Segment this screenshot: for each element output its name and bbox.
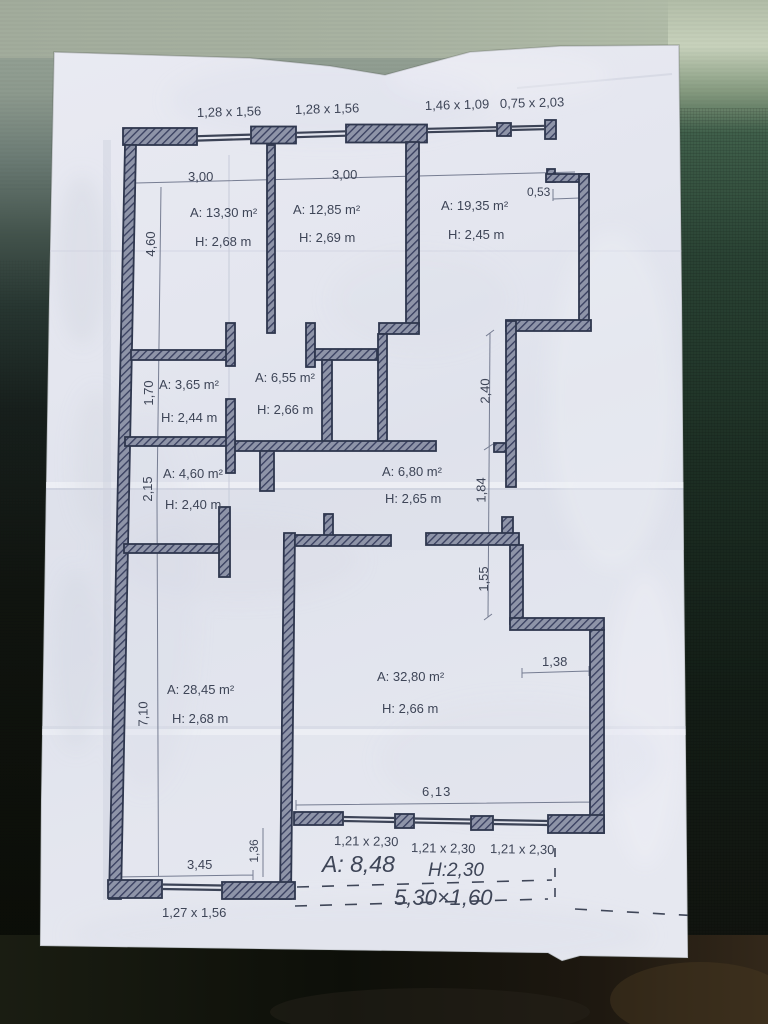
svg-text:1,21 x 2,30: 1,21 x 2,30 (411, 840, 476, 856)
svg-text:1,27 x 1,56: 1,27 x 1,56 (162, 905, 226, 920)
svg-text:1,70: 1,70 (141, 380, 156, 405)
svg-text:1,84: 1,84 (474, 477, 489, 502)
svg-text:A: 8,48: A: 8,48 (320, 851, 395, 877)
svg-text:A: 13,30 m²: A: 13,30 m² (190, 205, 258, 220)
svg-text:1,46 x 1,09: 1,46 x 1,09 (425, 96, 490, 113)
svg-text:H: 2,68 m: H: 2,68 m (172, 711, 228, 726)
svg-text:1,28 x 1,56: 1,28 x 1,56 (295, 100, 360, 117)
svg-text:2,15: 2,15 (140, 476, 155, 501)
svg-text:1,21 x 2,30: 1,21 x 2,30 (490, 841, 555, 857)
svg-text:H: 2,66 m: H: 2,66 m (257, 402, 313, 417)
svg-text:3,00: 3,00 (188, 169, 213, 184)
svg-text:H: 2,40 m: H: 2,40 m (165, 497, 221, 512)
svg-text:A: 6,80 m²: A: 6,80 m² (382, 464, 443, 479)
svg-text:1,55: 1,55 (476, 566, 491, 591)
svg-text:A: 28,45 m²: A: 28,45 m² (167, 682, 235, 697)
svg-text:3,45: 3,45 (187, 857, 212, 872)
svg-text:H: 2,65 m: H: 2,65 m (385, 491, 441, 506)
svg-text:0,53: 0,53 (527, 185, 551, 199)
svg-text:A: 12,85 m²: A: 12,85 m² (293, 202, 361, 217)
svg-text:A: 3,65 m²: A: 3,65 m² (159, 377, 220, 392)
svg-text:H:2,30: H:2,30 (428, 860, 484, 881)
svg-text:5,30×1,60: 5,30×1,60 (394, 885, 493, 910)
svg-text:4,60: 4,60 (143, 231, 158, 256)
svg-text:H: 2,68 m: H: 2,68 m (195, 234, 251, 249)
svg-text:H: 2,69 m: H: 2,69 m (299, 230, 355, 245)
svg-text:A: 4,60 m²: A: 4,60 m² (163, 466, 224, 481)
svg-text:A: 6,55 m²: A: 6,55 m² (255, 370, 316, 385)
svg-text:A: 32,80 m²: A: 32,80 m² (377, 669, 445, 684)
svg-text:7,10: 7,10 (136, 701, 151, 726)
svg-text:1,21 x 2,30: 1,21 x 2,30 (334, 833, 399, 849)
svg-text:1,36: 1,36 (247, 839, 261, 863)
svg-text:0,75 x 2,03: 0,75 x 2,03 (500, 94, 565, 111)
svg-text:2,40: 2,40 (478, 378, 493, 403)
svg-text:6,13: 6,13 (422, 784, 451, 799)
svg-text:A: 19,35 m²: A: 19,35 m² (441, 198, 509, 213)
svg-text:H: 2,45 m: H: 2,45 m (448, 227, 504, 242)
svg-text:H: 2,66 m: H: 2,66 m (382, 701, 438, 716)
svg-text:H: 2,44 m: H: 2,44 m (161, 410, 217, 425)
svg-text:3,00: 3,00 (332, 167, 357, 182)
svg-text:1,28 x 1,56: 1,28 x 1,56 (197, 103, 262, 120)
svg-text:1,38: 1,38 (542, 654, 567, 669)
